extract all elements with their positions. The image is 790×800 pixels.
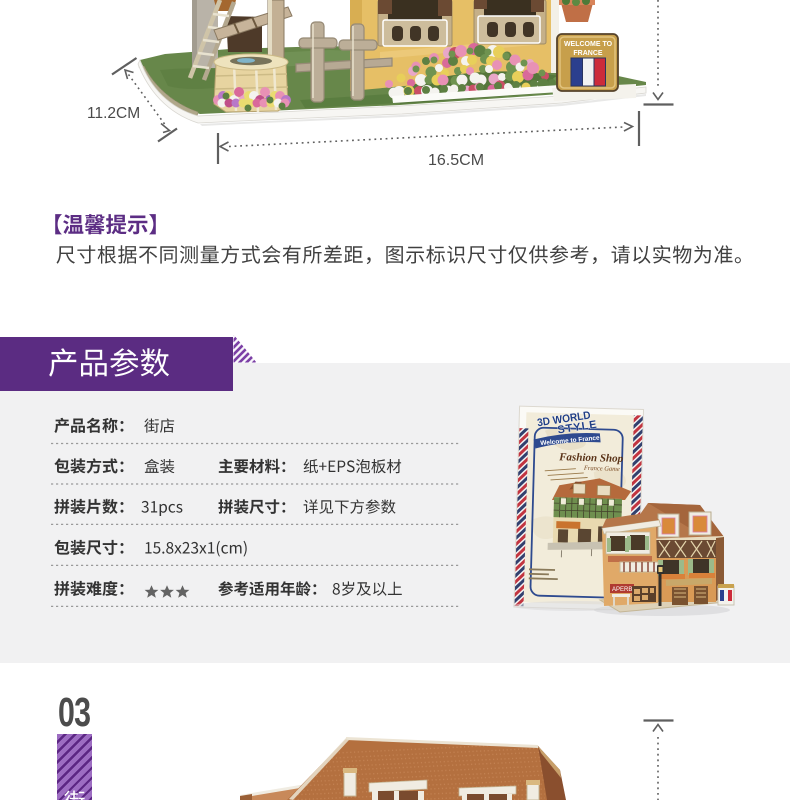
svg-text:FRANCE: FRANCE <box>573 50 602 57</box>
svg-text:WELCOME TO: WELCOME TO <box>564 41 613 48</box>
svg-text:France Game: France Game <box>583 465 620 473</box>
svg-text:16.5CM: 16.5CM <box>428 152 484 169</box>
svg-text:Fashion Shop: Fashion Shop <box>558 451 624 465</box>
svg-text:11.2CM: 11.2CM <box>87 105 140 122</box>
